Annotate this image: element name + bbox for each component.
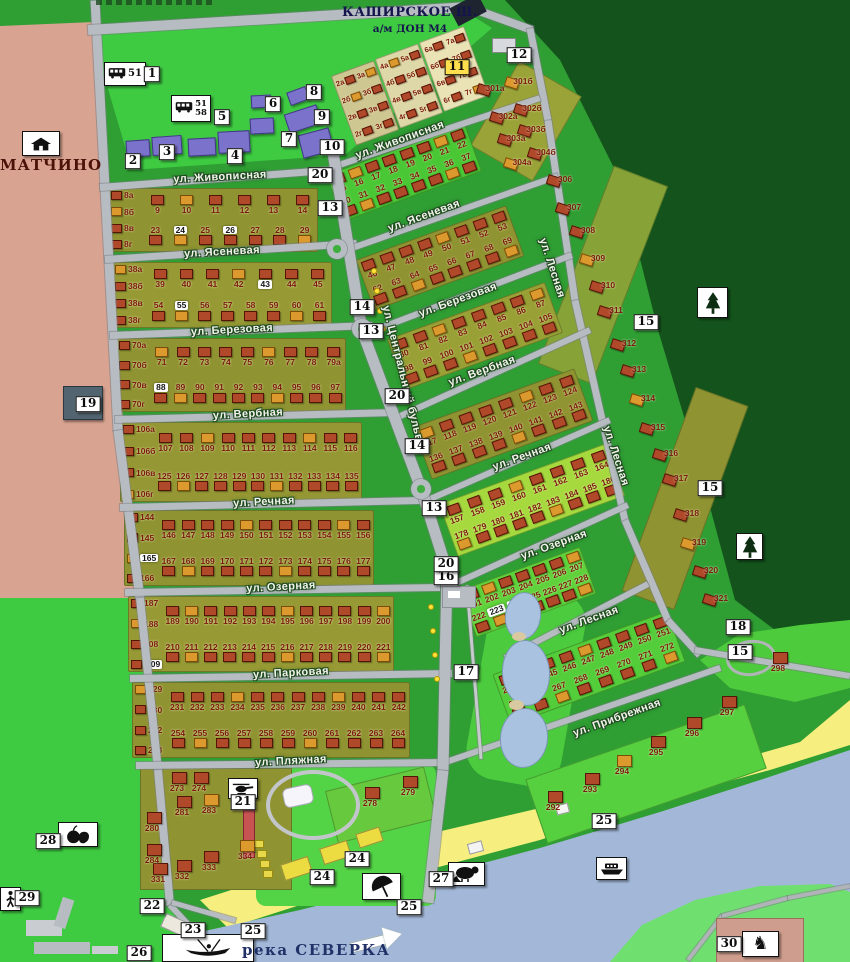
highway-sub-label: а/м ДОН М4 [330,23,490,35]
plot-cell: 28 [273,226,286,246]
plot-number: 177 [356,557,370,566]
plot-cell: 146 [162,520,176,540]
plot-number: 213 [223,643,237,652]
plot-number: 151 [259,531,273,540]
map-marker-24: 24 [310,869,335,885]
plot-number: 314 [641,394,655,403]
plot-house [284,347,297,357]
plot-cell: 109 [200,433,214,453]
plot-house [240,566,253,576]
plot-cell: 101 [458,341,478,364]
plot-number: 108 [179,444,193,453]
plot-number: 145 [140,534,154,543]
plot-number: 280 [145,824,159,833]
plot-cell: 60 [290,301,303,321]
plot-house [119,361,130,370]
plot-house [344,433,357,443]
plot-number: 187 [144,599,158,608]
plot-cell: 76 [262,347,275,367]
plot-cell: 207 [565,551,585,574]
plot-block: 38а38б38в38г3940414243444554555657585960… [112,262,332,328]
plot-cell: 120 [478,404,498,427]
plot-block: 106а106б106в106г107108109110111112113114… [120,422,362,502]
plot-cell: 131 [270,472,284,492]
plot-house [131,660,142,669]
map-marker-3: 3 [159,144,175,160]
plot-house [201,433,214,443]
plot-cell: 36 [442,157,461,180]
plot-cell: 73 [198,347,211,367]
plot-house [223,652,236,662]
plot-house [267,311,280,321]
plot-cell: 136 [428,451,448,474]
plot-cell: 13 [267,195,280,215]
plot-cell: 114 [303,433,317,453]
plot-cell: 24 [174,226,187,246]
plot-house [193,393,206,403]
plot-house [204,652,217,662]
plot-number: 256 [215,729,229,738]
beaver-icon [448,862,485,886]
boulevard-lamp [432,652,438,658]
plot-cell: 43 [258,269,271,289]
plot-house [305,347,318,357]
plot-cell: 250 [633,623,653,646]
plot-number: 119 [462,421,478,434]
plot-number: 197 [319,617,333,626]
plot-number: 309 [591,254,605,263]
plot-house [352,692,365,702]
map-marker-4: 4 [227,148,243,164]
plot-cell: 258 [259,729,273,749]
plot-house [259,269,272,279]
plot-cell: 95 [290,383,303,403]
plot-cell: 148 [201,520,215,540]
plot-number: 38а [128,265,142,274]
plot-cell: 14 [296,195,309,215]
plot-number: 193 [242,617,256,626]
plot-number: 232 [190,703,204,712]
plot-cell: 249 [614,630,634,653]
plot-cell: 75 [241,347,254,367]
plot-number: 235 [251,703,265,712]
plot-cell: 125 [157,472,171,492]
plot-number: 116 [344,444,358,453]
plot-cell: 216 [280,643,294,663]
plot-cell: 236 [271,692,285,712]
plot-house [154,393,167,403]
plot-cell: 91 [213,383,226,403]
plot-cell: 152 [278,520,292,540]
plot-cell: 89 [174,383,187,403]
street-name-label: ул. Речная [233,494,295,509]
plot-number: 56 [200,301,209,310]
plot-number: 283 [202,806,216,815]
plot-number: 146 [162,531,176,540]
parked-bus [448,591,460,598]
plot-number: 16 [353,177,365,188]
plot-number: 192 [223,617,237,626]
plot-number: 24 [174,226,187,235]
plot-house [304,738,317,748]
plot-house [312,692,325,702]
highway-label: КАШИРСКОЕ Ш. [330,5,490,20]
plot-cell: 248 [595,637,615,660]
plot-number: 93 [253,383,262,392]
plot-cell: 195 [280,606,294,626]
plot-cell: 210 [166,643,180,663]
plot-cell: 218 [319,643,333,663]
plot-house [279,566,292,576]
plot-number: 45 [313,280,322,289]
plot-number: 162 [552,475,568,488]
park-stall [263,870,273,878]
plot-cell: 260 [303,729,317,749]
plot-house [177,481,190,491]
plot-cell: 262 [347,729,361,749]
plot-house [177,347,190,357]
plot-house [326,481,339,491]
plot-house [337,566,350,576]
plot-house [345,481,358,491]
plot-cell: 48 [398,245,417,268]
plot-house [232,269,245,279]
plot-cell: 90 [193,383,206,403]
plot-number: 13 [269,206,278,215]
plot-number: 169 [201,557,215,566]
plot-cell: 87 [529,288,548,311]
map-marker-27: 27 [429,871,454,887]
map-marker-13: 13 [318,200,343,216]
plot-cell: 155 [337,520,351,540]
plot-house [327,347,340,357]
plot-block: 2292302522532312322332342352362372382392… [132,682,410,758]
plot-cell: 118 [438,418,458,441]
plot-cell: 50 [435,231,454,254]
plot-number: 304а [513,158,532,167]
plot-cell: 182 [527,501,547,524]
plot-block: 8а8б8в8г9101112131423242526272829 [108,188,318,252]
plot-number: 10 [182,206,191,215]
boulevard-lamp [374,288,380,294]
plot-number: 8г [124,240,132,249]
plot-number: 301а [486,84,505,93]
plot-house [182,520,195,530]
plot-number: 173 [278,557,292,566]
plot-number: 150 [239,531,253,540]
plot-house [214,481,227,491]
plot-number: 26 [223,226,236,235]
plot-number: 28 [275,226,284,235]
plot-house [115,299,126,308]
plot-cell: 150 [239,520,253,540]
plot-number: 317 [674,474,688,483]
plot-number: 174 [298,557,312,566]
plot-number: 47 [385,262,397,273]
plot-cell: 171 [239,557,253,577]
plot-number: 106б [136,447,155,456]
plot-house [282,738,295,748]
map-marker-29: 29 [15,890,40,906]
plot-house [450,91,462,102]
plot-house [198,311,211,321]
park-loop-path [266,770,360,840]
plot-cell: 128 [213,472,227,492]
plot-cell: 231 [170,692,184,712]
plot-cell: 174 [298,557,312,577]
plot-number: 110 [221,444,235,453]
plot-number: 107 [158,444,172,453]
plot-number: 122 [522,399,538,412]
plot-cell: 20 [416,141,435,164]
plot-number: 163 [573,467,589,480]
pier-structure [92,946,118,954]
plot-house [300,652,313,662]
settlement-map: КАШИРСКОЕ Ш. а/м ДОН М4 МАТЧИНО река СЕВ… [0,0,850,962]
plot-cell: 57 [221,301,234,321]
plot-cell: 61 [313,301,326,321]
plot-cell: 81 [412,330,431,353]
plot-cell: 161 [528,472,548,495]
plot-house [259,566,272,576]
plot-house [259,520,272,530]
plot-house [362,125,374,136]
plot-house [358,652,371,662]
roundabout [411,479,431,499]
plot-cell: 158 [466,495,486,518]
plot-cell: 142 [548,407,568,430]
plot-house [337,520,350,530]
plot-number: 53 [496,222,508,233]
plot-number: 211 [185,643,199,652]
plot-cell: 67 [463,249,482,272]
roundabout [327,239,347,259]
plot-number: 38в [128,299,143,308]
plot-house [185,606,198,616]
plot-cell: 154 [317,520,331,540]
map-marker-25: 25 [241,923,266,939]
plot-cell: 42 [232,269,245,289]
plot-number: 301б [513,77,532,86]
plot-cell: 176 [337,557,351,577]
plot-cell: 18 [382,153,401,176]
plot-number: 44 [287,280,296,289]
plot-number: 106в [136,469,155,478]
plot-cell: 181 [508,508,528,531]
plot-cell: 133 [307,472,321,492]
plot-number: 70в [132,381,147,390]
plot-house [356,108,368,119]
plot-number: 264 [391,729,405,738]
plot-house [180,433,193,443]
plot-house [394,74,406,85]
plot-number: 220 [357,643,371,652]
plot-cell: 11 [209,195,222,215]
plot-cell: 16 [348,166,367,189]
plot-house [201,566,214,576]
plot-number: 168 [181,557,195,566]
map-marker-1: 1 [144,66,160,82]
plot-house [149,235,162,245]
plot-house [242,652,255,662]
map-marker-6: 6 [265,96,281,112]
plot-cell: 254 [171,729,185,749]
plot-number: 304б [536,148,555,157]
plot-cell: 121 [498,396,518,419]
plot-cell: 213 [223,643,237,663]
plot-cell: 71 [155,347,168,367]
plot-cell: 107 [158,433,172,453]
plot-number: 157 [449,512,465,525]
plot-house [135,726,146,735]
plot-cell: 63 [389,276,408,299]
plot-cell: 168 [181,557,195,577]
map-marker-22: 22 [140,898,165,914]
plot-cell: 271 [637,649,657,672]
plot-number: 75 [243,358,252,367]
plot-cell: 175 [317,557,331,577]
map-marker-18: 18 [726,619,751,635]
plot-cell: 105 [538,312,558,335]
plot-number: 254 [171,729,185,738]
plot-house [262,652,275,662]
plot-house [388,57,400,68]
plot-cell: 247 [576,644,596,667]
plot-house [119,380,130,389]
plot-number: 155 [337,531,351,540]
plot-number: 249 [618,640,634,653]
plot-number: 302б [522,104,541,113]
plot-number: 297 [720,708,734,717]
plot-house [224,606,237,616]
clipped-road-label [96,0,216,5]
plot-cell: 103 [498,326,518,349]
plot-cell: 269 [594,665,614,688]
plot-cell: 160 [507,479,527,502]
plot-house [204,606,217,616]
plot-house [194,738,207,748]
plot-number: 279 [401,788,415,797]
plot-number: 171 [239,557,253,566]
plot-cell: 228 [573,573,593,596]
plot-cell: 197 [319,606,333,626]
plot-cell: 137 [448,443,468,466]
plot-cell: 59 [267,301,280,321]
plot-number: 95 [292,383,301,392]
plot-cell: 31 [356,188,375,211]
village-label: МАТЧИНО [0,156,102,174]
plot-number: 294 [615,767,629,776]
plot-house [198,347,211,357]
plot-house [329,393,342,403]
plot-cell: 21 [433,135,452,158]
plot-cell: 54 [152,301,165,321]
plot-number: 251 [655,626,671,639]
plot-cell: 74 [219,347,232,367]
plot-cell: 234 [230,692,244,712]
plot-cell: 167 [162,557,176,577]
plot-cell: 40 [180,269,193,289]
plot-cell: 111 [242,433,255,453]
plot-number: 281 [175,808,189,817]
plot-cell: 34 [407,170,426,193]
plot-number: 312 [622,339,636,348]
plot-house [119,341,130,350]
plot-number: 41 [208,280,217,289]
plot-house [281,606,294,616]
plot-cell: 23 [149,226,162,246]
plot-number: 241 [372,703,386,712]
plot-house [326,738,339,748]
plot-number: 20 [422,152,434,163]
plot-cell: 19 [399,147,418,170]
plot-block: 70а70б70в70г717273747576777879а888990919… [116,338,346,412]
plot-house [408,50,420,61]
plot-cell: 79а [327,347,341,367]
plot-cell: 272 [659,641,679,664]
plot-cell: 139 [488,429,508,452]
plot-cell: 96 [309,383,322,403]
plot-cell: 86 [510,295,529,318]
plot-number: 298 [771,664,785,673]
plot-number: 85 [496,313,508,324]
plot-number: 167 [162,557,176,566]
plot-house [281,652,294,662]
plot-house [289,481,302,491]
plot-number: 316 [664,449,678,458]
plot-cell: 212 [203,643,217,663]
plot-house [233,481,246,491]
plot-house [241,347,254,357]
plot-house [290,393,303,403]
plot-house [171,692,184,702]
plot-number: 23 [151,226,160,235]
plot-number: 263 [369,729,383,738]
plot-number: 54 [154,301,163,310]
plot-cell: 119 [458,411,478,434]
plot-number: 133 [307,472,321,481]
map-marker-13: 13 [422,500,447,516]
plot-house [158,481,171,491]
plot-house [358,606,371,616]
plot-house [377,606,390,616]
plot-cell: 135 [344,472,358,492]
plot-number: 196 [300,617,314,626]
plot-number: 278 [363,799,377,808]
plot-number: 58 [246,301,255,310]
map-marker-5: 5 [214,109,230,125]
map-marker-9: 9 [314,109,330,125]
plot-number: 315 [651,423,665,432]
map-marker-10: 10 [320,139,345,155]
plot-cell: 149 [220,520,234,540]
plot-house [308,481,321,491]
plot-cell: 65 [426,262,445,285]
plot-number: 39 [155,280,164,289]
bus-icon [175,101,193,116]
plot-cell: 184 [563,488,583,511]
plot-house [271,692,284,702]
plot-cell: 170 [220,557,234,577]
plot-house [240,520,253,530]
plot-house [231,692,244,702]
plot-house [199,235,212,245]
plot-number: 236 [271,703,285,712]
plot-number: 303б [526,125,545,134]
bus-route-label: 51 [128,69,142,79]
plot-house [243,606,256,616]
plot-house [191,692,204,702]
